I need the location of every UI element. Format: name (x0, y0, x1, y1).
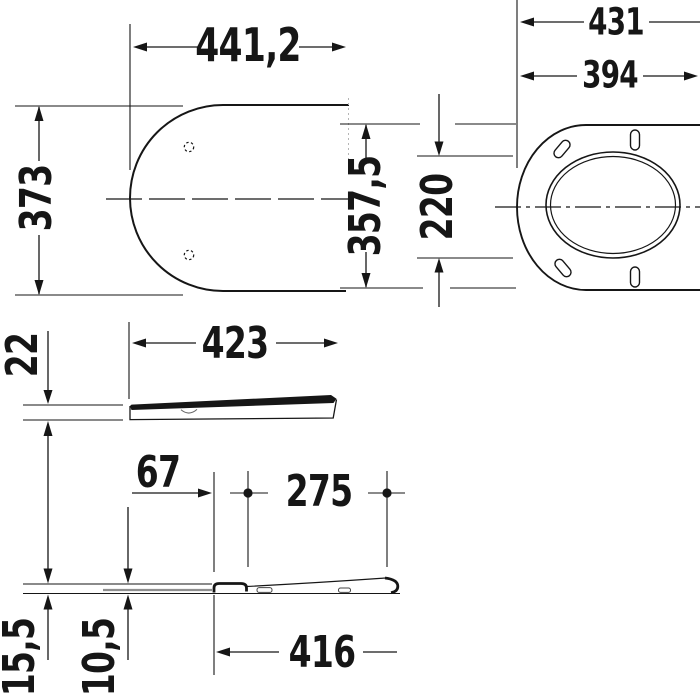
hinge-slot-bottom-left (553, 257, 573, 278)
hinge-slot-top-left (552, 138, 572, 159)
drawing-linework (0, 0, 700, 700)
lid-width-label: 441,2 (195, 22, 300, 68)
lid-hinge-detail (181, 409, 197, 413)
lid-thickness-label: 22 (1, 333, 45, 377)
seat-top-view (495, 125, 700, 290)
dimension-drawing-canvas: 441,2 373 431 394 357,5 220 423 22 67 27… (0, 0, 700, 700)
front-height-label: 15,5 (0, 618, 42, 696)
pivot-dot-left (243, 488, 252, 497)
seat-profile-top-edge (247, 578, 387, 587)
rear-height-label: 10,5 (78, 618, 122, 696)
opening-depth-label: 220 (416, 174, 460, 241)
seat-opening-inner (551, 157, 676, 254)
seat-depth-label: 357,5 (344, 156, 388, 257)
seat-opening-outer (546, 152, 680, 258)
hinge-hole-top (184, 142, 193, 151)
lid-profile-top-surface (130, 395, 337, 410)
seat-rear-curl (385, 578, 398, 593)
lid-outline (130, 105, 349, 291)
seat-side-view (23, 578, 400, 594)
lid-top-view (106, 98, 349, 291)
hinge-hole-bottom (184, 250, 193, 259)
seat-front-bumper (214, 584, 247, 593)
seat-outer-width-label: 431 (588, 4, 644, 41)
seat-bumper-pad-left (257, 588, 272, 593)
pivot-spacing-label: 275 (286, 470, 353, 514)
seat-length-label: 416 (289, 631, 356, 675)
lid-length-label: 423 (202, 322, 269, 366)
lid-side-view (130, 395, 337, 420)
pivot-dot-right (382, 488, 391, 497)
hinge-slot-bottom-right (631, 267, 640, 287)
lid-depth-label: 373 (15, 165, 59, 232)
hinge-offset-label: 67 (136, 451, 180, 495)
seat-bumper-pad-right (339, 588, 351, 592)
hinge-slot-top-right (631, 130, 640, 150)
dim-hinge-offset (132, 472, 214, 675)
seat-hinge-width-label: 394 (582, 57, 638, 94)
